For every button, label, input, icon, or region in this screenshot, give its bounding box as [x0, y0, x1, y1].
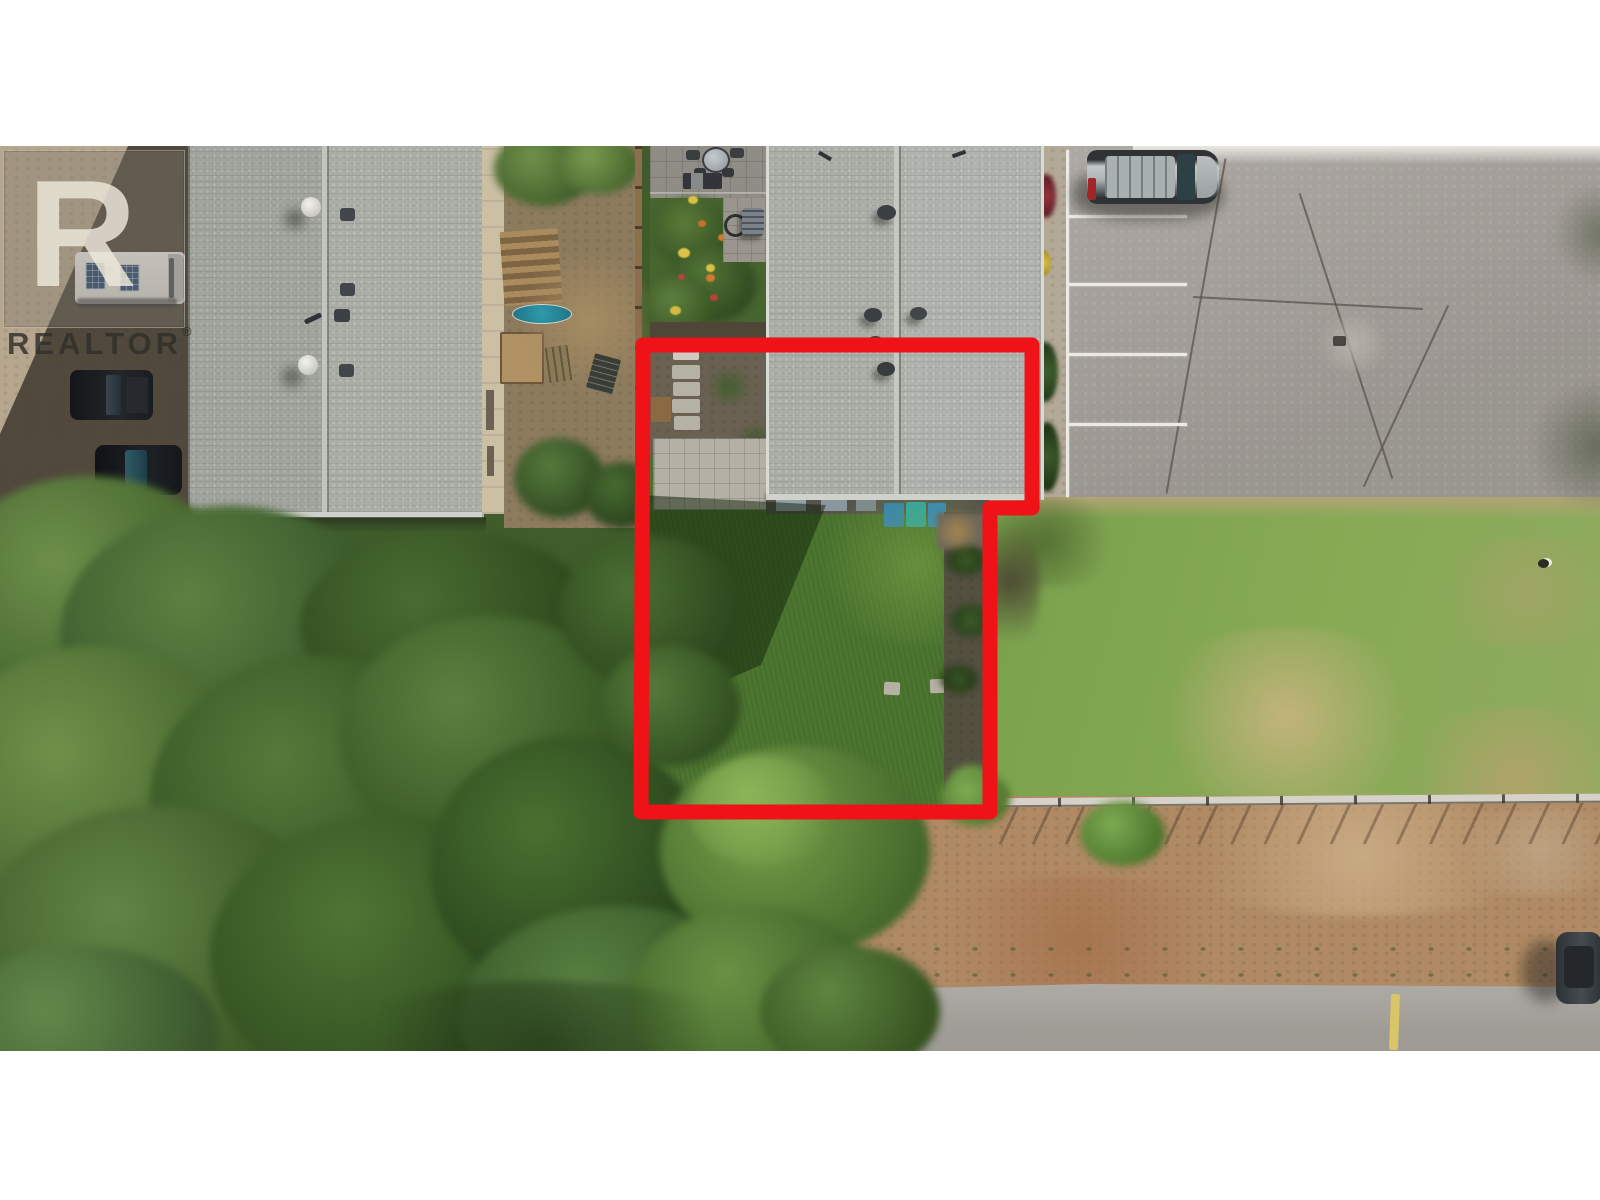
- aerial-photo: [0, 146, 1600, 1051]
- roof-vent-white: [298, 355, 318, 375]
- roof-ridge: [894, 146, 899, 500]
- pickup-hood: [126, 377, 148, 413]
- tree-shadow: [1548, 186, 1600, 281]
- watermark-logo-r: R: [17, 154, 147, 314]
- gravel-path-outside: [980, 507, 1040, 657]
- parking-stall-line: [1069, 353, 1187, 356]
- fence-shadow-hatch: [985, 802, 1600, 844]
- parking-stall-line: [1069, 423, 1187, 426]
- parked-car: [1548, 930, 1600, 1006]
- roof-light-half: [900, 146, 1038, 500]
- yellow-flower: [678, 248, 690, 258]
- pickup-windshield: [106, 375, 121, 415]
- facade-window: [486, 390, 494, 430]
- brand-text: REALTOR: [7, 326, 182, 362]
- paver-on-grass: [884, 682, 901, 696]
- parking-stall-line: [1069, 283, 1187, 286]
- suv-windshield: [1177, 154, 1195, 200]
- stepping-stone: [673, 382, 700, 396]
- roof-vent-dark: [864, 308, 882, 322]
- roof-vent-dark: [867, 336, 884, 349]
- dirt-field: [820, 796, 1600, 1006]
- tan-shrub: [935, 513, 979, 551]
- yellow-flower: [706, 264, 715, 272]
- roof-vent-white: [301, 197, 321, 217]
- logo-letter: R: [27, 158, 137, 310]
- flower-garden-yard: [650, 146, 766, 346]
- asphalt-crack: [1193, 296, 1423, 310]
- roof-vent-dark: [877, 205, 896, 220]
- tree-shadow: [1528, 381, 1600, 511]
- suv-hood: [1197, 156, 1217, 198]
- orange-flower: [706, 274, 715, 282]
- backyard-garden: [504, 146, 641, 528]
- silver-suv: [1087, 148, 1222, 206]
- storage-box: [683, 173, 722, 189]
- roof-vent-dark: [339, 364, 354, 377]
- soil-strip: [650, 322, 766, 346]
- wood-bench: [651, 397, 671, 422]
- path-plant: [951, 605, 989, 637]
- roof-vent-dark: [910, 307, 927, 320]
- garden-bench: [673, 348, 699, 360]
- realtor-watermark: R REALTOR®: [3, 150, 199, 362]
- patio-chair: [722, 168, 734, 177]
- drain-grate: [1333, 336, 1346, 346]
- corner-bush: [940, 771, 1010, 826]
- suv-roof: [1105, 156, 1175, 198]
- watermark-wordmark: REALTOR®: [7, 326, 192, 362]
- registered-mark: ®: [182, 324, 192, 339]
- dry-patch: [1416, 537, 1600, 647]
- bright-tree-highlight: [690, 756, 840, 866]
- patio-chair: [730, 148, 744, 158]
- yellow-curb-mark: [1389, 994, 1400, 1050]
- weed: [707, 369, 751, 405]
- red-flower: [678, 274, 685, 280]
- screenshot-canvas: R REALTOR®: [0, 0, 1600, 1200]
- black-pickup: [70, 370, 155, 422]
- patio-chair: [686, 150, 700, 160]
- path-plant: [941, 665, 977, 693]
- small-object-on-lawn: [1538, 559, 1549, 568]
- lawn-bush: [1080, 801, 1165, 866]
- stepping-stone: [672, 365, 700, 379]
- roof-vent-dark: [340, 208, 355, 221]
- stepping-stone: [674, 416, 700, 430]
- red-flower: [710, 294, 718, 301]
- roof-vent-dark: [340, 283, 355, 296]
- roof-vent-dark: [877, 362, 895, 376]
- wood-frame: [545, 345, 573, 384]
- orange-flower: [698, 220, 706, 227]
- roof-ridge: [322, 146, 327, 518]
- parking-lot: [1063, 146, 1600, 497]
- stepping-stone: [672, 399, 700, 413]
- suv-taillight: [1088, 178, 1096, 200]
- left-building: [188, 146, 504, 518]
- facade-window: [487, 446, 494, 476]
- garden-chair: [742, 208, 764, 236]
- car-roof: [1564, 946, 1594, 988]
- vacant-grass-lot: [986, 497, 1600, 822]
- tree-blob: [600, 646, 740, 766]
- asphalt-patch: [1313, 316, 1393, 372]
- yellow-flower: [670, 306, 681, 315]
- yellow-flower: [688, 196, 698, 204]
- roof-vent-dark: [334, 309, 350, 322]
- subject-building: [766, 146, 1038, 500]
- garden-wire: [650, 192, 766, 194]
- roof-eave: [766, 494, 1038, 500]
- teal-pool: [512, 304, 572, 324]
